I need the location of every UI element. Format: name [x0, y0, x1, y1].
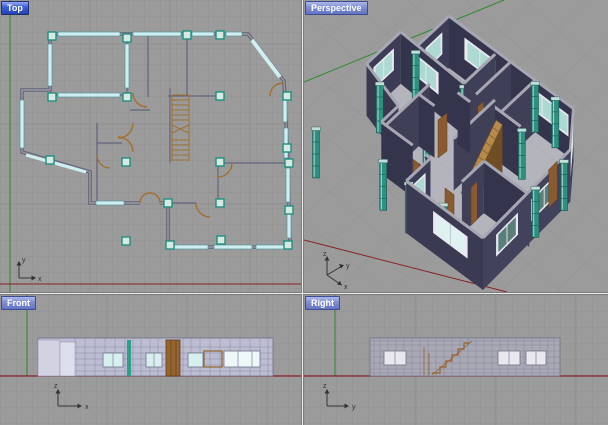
column	[531, 82, 540, 133]
viewport-tab-front[interactable]: Front	[1, 296, 36, 310]
axis-label-x: x	[344, 284, 348, 291]
axis-label-y: y	[352, 404, 356, 411]
door	[438, 113, 447, 158]
column	[379, 159, 388, 210]
axis-label-y: y	[346, 263, 350, 270]
door	[549, 161, 557, 208]
top-view-canvas[interactable]: y x	[0, 0, 301, 292]
teal-strip	[127, 340, 131, 376]
front-view-canvas[interactable]: z x	[0, 295, 301, 425]
axis-label-x: x	[85, 404, 89, 411]
right-view-canvas[interactable]: z y	[304, 295, 608, 425]
window	[224, 351, 260, 367]
viewport-tab-perspective[interactable]: Perspective	[305, 1, 368, 15]
door	[471, 181, 477, 225]
axis-label-z: z	[54, 383, 58, 390]
door	[166, 340, 180, 376]
viewport-right: z y Right	[304, 295, 608, 425]
front-elevation	[38, 338, 273, 376]
cad-workspace: y x Top	[0, 0, 608, 425]
column	[531, 186, 540, 237]
viewport-top: y x Top	[0, 0, 301, 292]
axis-label-x: x	[38, 276, 42, 283]
viewport-front: z x Front	[0, 295, 301, 425]
column	[517, 128, 526, 179]
viewport-tab-top[interactable]: Top	[1, 1, 29, 15]
column	[551, 97, 560, 148]
perspective-view-canvas[interactable]: z y x	[304, 0, 608, 292]
column	[560, 160, 569, 211]
axis-label-z: z	[323, 383, 327, 390]
viewport-perspective: z y x Perspective	[304, 0, 608, 292]
axis-label-z: z	[323, 251, 327, 258]
window	[103, 353, 203, 367]
right-elevation	[370, 338, 560, 376]
viewport-tab-right[interactable]: Right	[305, 296, 340, 310]
axis-label-y: y	[22, 257, 26, 264]
column	[312, 127, 321, 178]
